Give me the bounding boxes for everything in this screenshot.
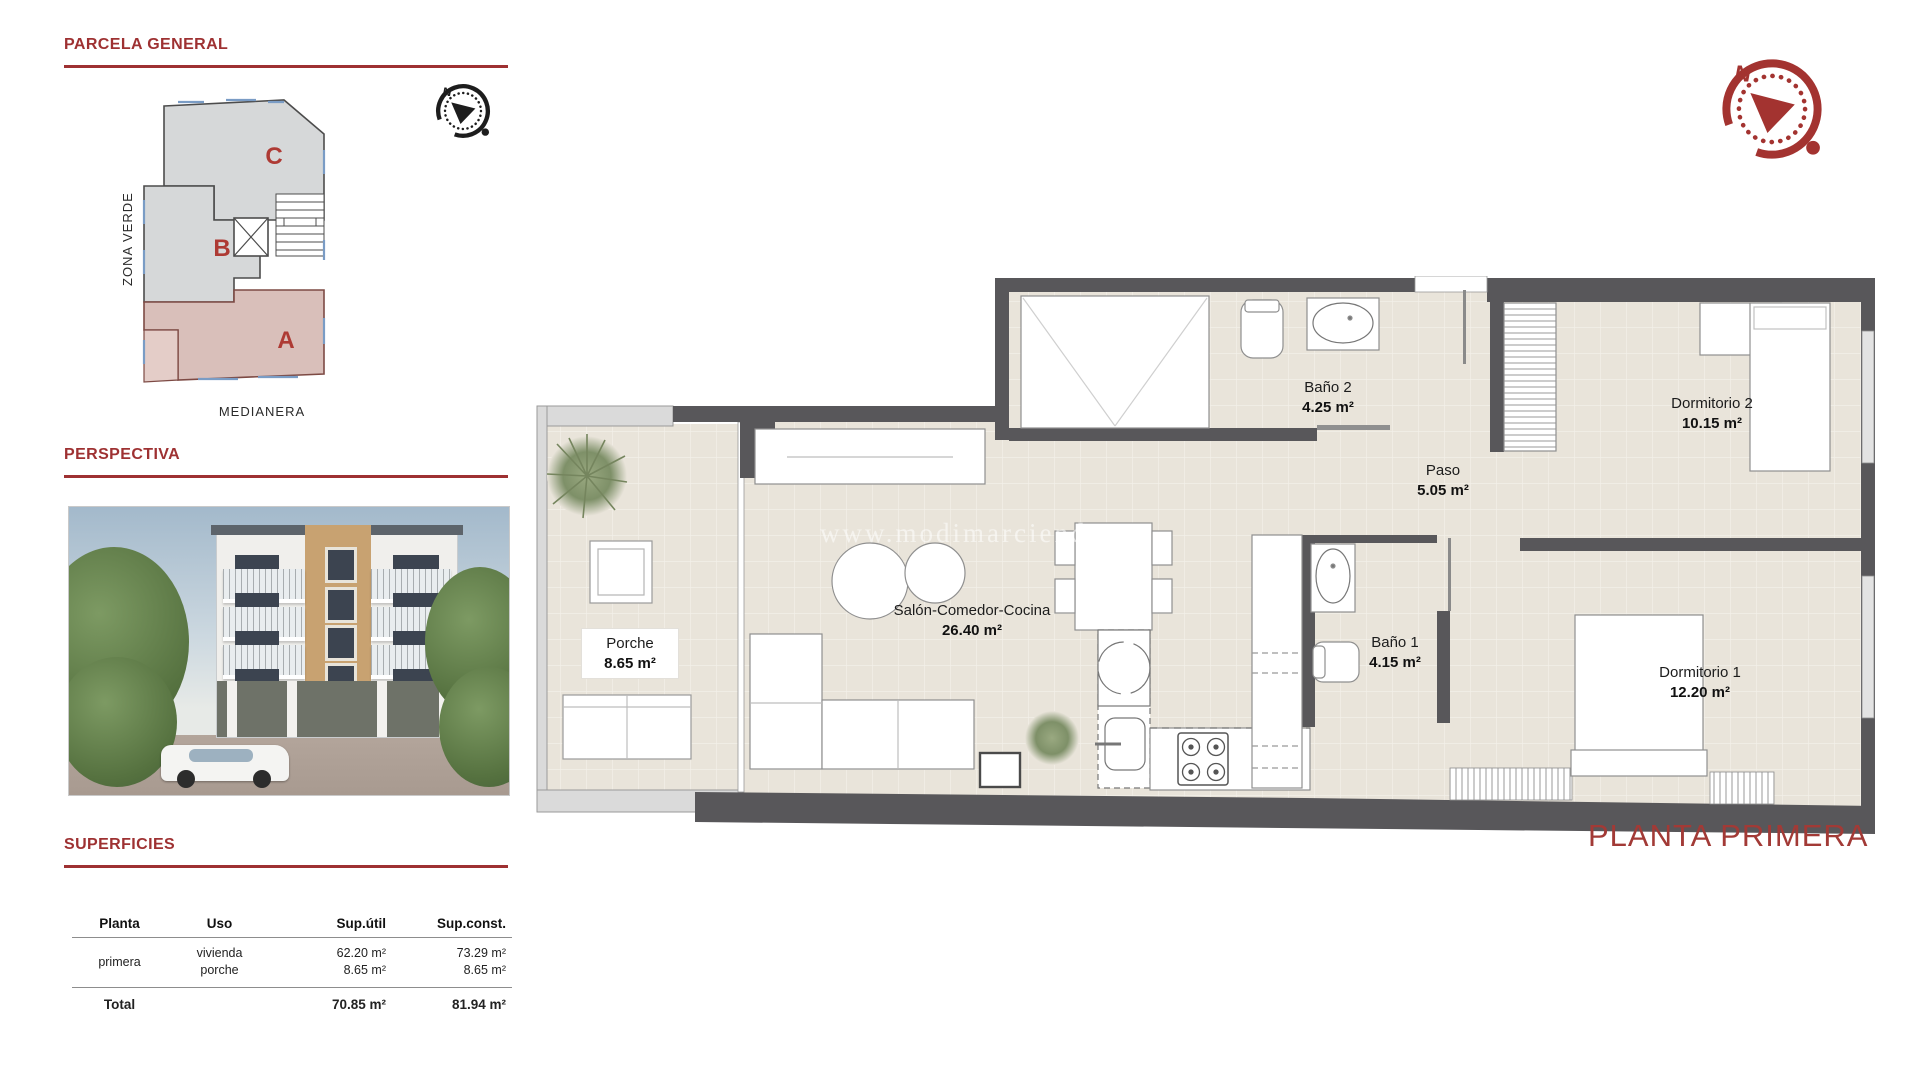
block-b-letter: B [213, 235, 230, 262]
room-label-paso: Paso 5.05 m² [1383, 461, 1503, 500]
col-header-uso: Uso [167, 916, 272, 931]
room-name: Dormitorio 2 [1632, 394, 1792, 414]
site-compass-icon: N [432, 80, 494, 142]
room-label-salon: Salón-Comedor-Cocina 26.40 m² [852, 601, 1092, 640]
room-name: Dormitorio 1 [1610, 663, 1790, 683]
compass-north-label: N [1734, 61, 1751, 87]
car [161, 745, 289, 781]
room-name: Paso [1383, 461, 1503, 481]
table-row: primera vivienda porche 62.20 m² 8.65 m²… [72, 938, 512, 988]
cell-planta: primera [72, 955, 167, 969]
floorplan-drawing [535, 276, 1880, 856]
cell-sup-const: 73.29 m² 8.65 m² [392, 945, 512, 979]
plan-title: PLANTA PRIMERA [1588, 818, 1888, 854]
block-a-letter: A [277, 327, 294, 354]
parcela-general-heading: PARCELA GENERAL [64, 36, 508, 68]
perspectiva-heading: PERSPECTIVA [64, 446, 508, 478]
zona-verde-label: ZONA VERDE [120, 192, 135, 286]
room-label-dormitorio2: Dormitorio 2 10.15 m² [1632, 394, 1792, 433]
superficies-heading: SUPERFICIES [64, 836, 508, 868]
sup-const-vivienda: 73.29 m² [392, 945, 506, 962]
plan-compass-icon: N [1715, 52, 1829, 166]
building-render-image [68, 506, 510, 796]
render-building [217, 533, 457, 737]
plant [1025, 711, 1079, 765]
room-area: 4.25 m² [1248, 398, 1408, 418]
total-sup-const: 81.94 m² [392, 997, 512, 1012]
room-name: Baño 2 [1248, 378, 1408, 398]
room-name: Porche [590, 634, 670, 654]
site-plan: ZONA VERDE C B A [118, 90, 406, 402]
block-c-letter: C [265, 143, 282, 170]
room-area: 12.20 m² [1610, 683, 1790, 703]
room-area: 4.15 m² [1325, 653, 1465, 673]
room-area: 26.40 m² [852, 621, 1092, 641]
room-label-banyo2: Baño 2 4.25 m² [1248, 378, 1408, 417]
table-total-row: Total 70.85 m² 81.94 m² [72, 988, 512, 1012]
uso-porche: porche [167, 962, 272, 979]
uso-vivienda: vivienda [167, 945, 272, 962]
room-area: 10.15 m² [1632, 414, 1792, 434]
room-label-dormitorio1: Dormitorio 1 12.20 m² [1610, 663, 1790, 702]
table-header-row: Planta Uso Sup.útil Sup.const. [72, 916, 512, 938]
room-name: Baño 1 [1325, 633, 1465, 653]
sup-util-vivienda: 62.20 m² [272, 945, 386, 962]
total-sup-util: 70.85 m² [272, 997, 392, 1012]
col-header-planta: Planta [72, 916, 167, 931]
sup-const-porche: 8.65 m² [392, 962, 506, 979]
room-name: Salón-Comedor-Cocina [852, 601, 1092, 621]
room-label-banyo1: Baño 1 4.15 m² [1325, 633, 1465, 672]
total-label: Total [72, 997, 167, 1012]
col-header-sup-const: Sup.const. [392, 916, 512, 931]
compass-north-label: N [443, 85, 453, 99]
cell-sup-util: 62.20 m² 8.65 m² [272, 945, 392, 979]
superficies-table: Planta Uso Sup.útil Sup.const. primera v… [72, 916, 512, 1012]
medianera-label: MEDIANERA [118, 404, 406, 419]
room-area: 5.05 m² [1383, 481, 1503, 501]
room-area: 8.65 m² [590, 654, 670, 674]
cell-uso: vivienda porche [167, 945, 272, 979]
room-label-porche: Porche 8.65 m² [581, 628, 679, 679]
col-header-sup-util: Sup.útil [272, 916, 392, 931]
site-block-a-annex [144, 330, 178, 382]
sup-util-porche: 8.65 m² [272, 962, 386, 979]
site-stairs [276, 194, 324, 256]
floorplan: www.modimarciendom Baño 2 4.25 m² Dormit… [535, 276, 1880, 856]
